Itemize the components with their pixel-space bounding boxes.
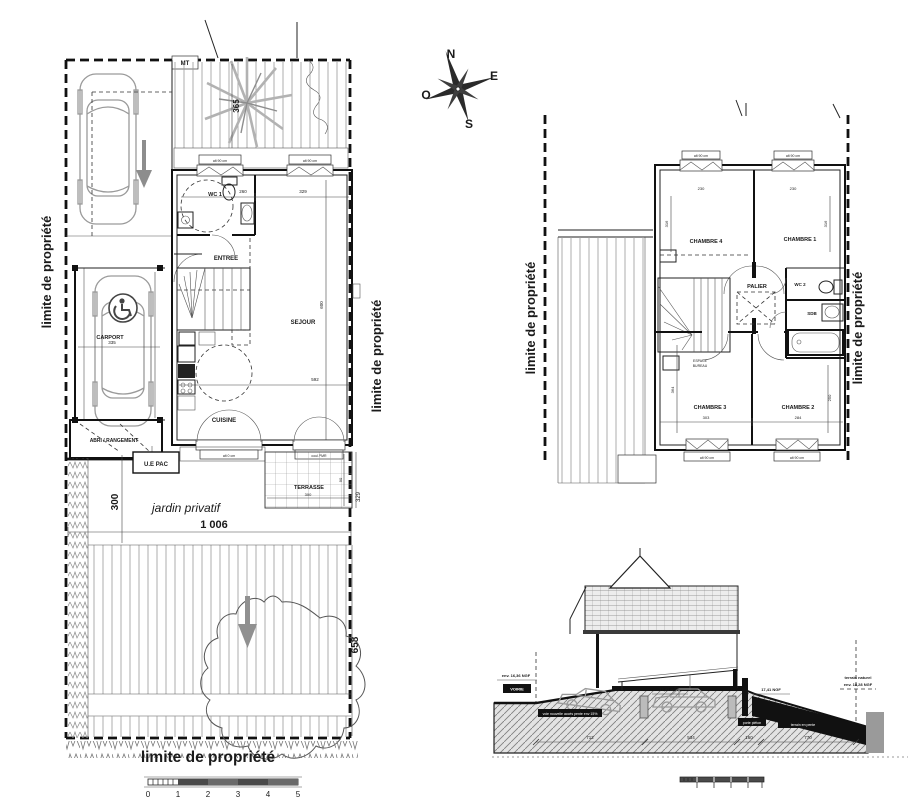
dim-sejour-width: 592 xyxy=(311,377,319,382)
room-abri: ABRI / RANGEMENT xyxy=(90,438,139,444)
scale-1: 1 xyxy=(176,790,181,799)
dim-ch4: 316 xyxy=(664,220,669,227)
room-chambre1: CHAMBRE 1 xyxy=(784,237,817,243)
window-label: alt 90 cm xyxy=(700,456,714,460)
dim-ch2w: 284 xyxy=(795,415,802,420)
window-north-2: alt 90 cm xyxy=(287,155,333,176)
dim-ch3h: 364 xyxy=(670,386,675,393)
room-wc2: WC 2 xyxy=(794,282,806,287)
bathtub-icon xyxy=(788,330,843,355)
dim-ch3w: 303 xyxy=(703,415,710,420)
room-entree: ENTREE xyxy=(214,256,238,262)
compass-s: S xyxy=(465,117,473,131)
pente-label: terrain en pente xyxy=(791,723,816,727)
dim-534: 534 xyxy=(687,735,695,740)
dim-garden-depth: 658 xyxy=(350,636,361,653)
compass-o: O xyxy=(421,88,430,102)
floor-window-top-left: alt 90 cm 230 xyxy=(680,151,722,191)
room-chambre3: CHAMBRE 3 xyxy=(694,405,727,411)
dim-garden-offset: 300 xyxy=(110,493,121,510)
floor-window-bottom-left: alt 90 cm xyxy=(684,439,730,461)
stairs xyxy=(177,268,250,330)
window-north-1: alt 90 cm xyxy=(197,155,243,176)
ramp-label: voie nouvelle accès pente env 15% xyxy=(543,712,598,716)
house-ground-floor: alt 90 cm alt 90 cm WC 1 260 329 xyxy=(172,155,360,459)
scale-2: 2 xyxy=(206,790,211,799)
boundary-label-right: limite de propriété xyxy=(369,300,384,413)
dim-terrasse-side: 329 xyxy=(356,491,362,502)
scale-4: 4 xyxy=(266,790,271,799)
room-palier: PALIER xyxy=(747,284,767,290)
door-label: alt 0 cm xyxy=(223,454,235,458)
dim-sejour-height: 600 xyxy=(319,301,324,309)
floor-window-bottom-right: alt 90 cm xyxy=(774,439,820,461)
boundary-label-left: limite de propriété xyxy=(39,216,54,329)
room-sdb: SDB xyxy=(807,311,817,316)
compass-n: N xyxy=(447,47,456,61)
toilet2-icon xyxy=(819,280,842,294)
voirie-label: VOIRIE xyxy=(510,687,524,692)
boundary-label-floor-left: limite de propriété xyxy=(523,262,538,375)
dim-terrasse-w: 300 xyxy=(305,492,312,497)
level-street: env. 16,36 NGF xyxy=(502,673,531,678)
roof xyxy=(570,548,740,634)
carport: 335 CARPORT xyxy=(72,265,165,426)
room-cuisine: CUISINE xyxy=(212,418,236,424)
window-label: alt 90 cm xyxy=(786,154,800,158)
dim-712: 712 xyxy=(586,735,594,740)
dim-770: 770 xyxy=(804,735,812,740)
window-label: alt 90 cm xyxy=(303,159,317,163)
dim-ch1: 316 xyxy=(823,220,828,227)
boundary-label-bottom: limite de propriété xyxy=(141,749,276,766)
dim-win-l: 230 xyxy=(698,186,705,191)
gate xyxy=(742,678,748,716)
scale-5: 5 xyxy=(296,790,301,799)
scale-bar-section xyxy=(680,777,764,788)
level-floor2: 17,41 NGF xyxy=(761,687,781,692)
sink-icon xyxy=(241,203,254,224)
architectural-drawing-sheet: MT 365 alt 9 xyxy=(0,0,913,800)
garden-hatch-lower xyxy=(88,716,351,737)
terrain-naturel-2: env. 18,28 NGF xyxy=(844,682,873,687)
cross-section: env. 16,36 NGF VOIRIE voie nouvelle accè… xyxy=(492,548,908,788)
porte-label: porte piéton xyxy=(743,721,762,725)
dim-driveway: 365 xyxy=(232,99,241,113)
kitchen-appliances xyxy=(178,346,195,410)
scale-3: 3 xyxy=(236,790,241,799)
compass-rose: N E S O xyxy=(413,39,504,132)
terrasse: TERRASSE 300 90 329 xyxy=(265,452,362,508)
window-label: alt 90 cm xyxy=(694,154,708,158)
dim-win-r: 230 xyxy=(790,186,797,191)
dim-sejour-top: 329 xyxy=(299,189,307,194)
toilet-icon xyxy=(222,177,237,200)
room-uepac: U.E PAC xyxy=(144,462,169,468)
terrain-naturel-1: terrain naturel xyxy=(845,675,872,680)
window-label: alt 90 cm xyxy=(213,159,227,163)
stairs-upper xyxy=(658,278,730,370)
dining-table-icon xyxy=(196,345,252,401)
room-terrasse: TERRASSE xyxy=(294,485,324,491)
room-bureau-2: BUREAU xyxy=(693,364,708,368)
handicap-icon xyxy=(109,294,137,322)
dim-ch2h: 250 xyxy=(827,394,832,401)
level-floor1: 17,41 NGF xyxy=(659,687,679,692)
driveway-hatch xyxy=(174,62,348,148)
scale-0: 0 xyxy=(146,790,151,799)
drawing-canvas: MT 365 alt 9 xyxy=(0,0,913,800)
neighbor-wall xyxy=(866,712,884,753)
floor-window-top-right: alt 90 cm 230 xyxy=(772,151,814,191)
dim-terrasse-d: 90 xyxy=(338,477,343,482)
site-plan: MT 365 alt 9 xyxy=(39,20,384,799)
room-carport: CARPORT xyxy=(96,335,124,341)
carport-roof-hatch xyxy=(558,230,656,483)
jardin-label: jardin privatif xyxy=(150,501,222,515)
dim-plot-width: 1 006 xyxy=(200,519,228,531)
dim-160: 160 xyxy=(745,735,753,740)
garden-hatch-upper xyxy=(88,545,351,694)
visitor-car-icon xyxy=(78,74,138,224)
planted-strip xyxy=(68,458,88,738)
window-label: alt 90 cm xyxy=(790,456,804,460)
scale-bar-site: 0 1 2 3 4 5 xyxy=(144,777,302,799)
room-sejour: SEJOUR xyxy=(291,320,316,326)
room-chambre2: CHAMBRE 2 xyxy=(782,405,815,411)
room-chambre4: CHAMBRE 4 xyxy=(690,239,724,245)
first-floor-plan: limite de propriété limite de propriété … xyxy=(523,100,865,483)
boundary-label-floor-right: limite de propriété xyxy=(850,272,865,385)
compass-e: E xyxy=(490,69,498,83)
dim-wc-width: 260 xyxy=(239,189,247,194)
